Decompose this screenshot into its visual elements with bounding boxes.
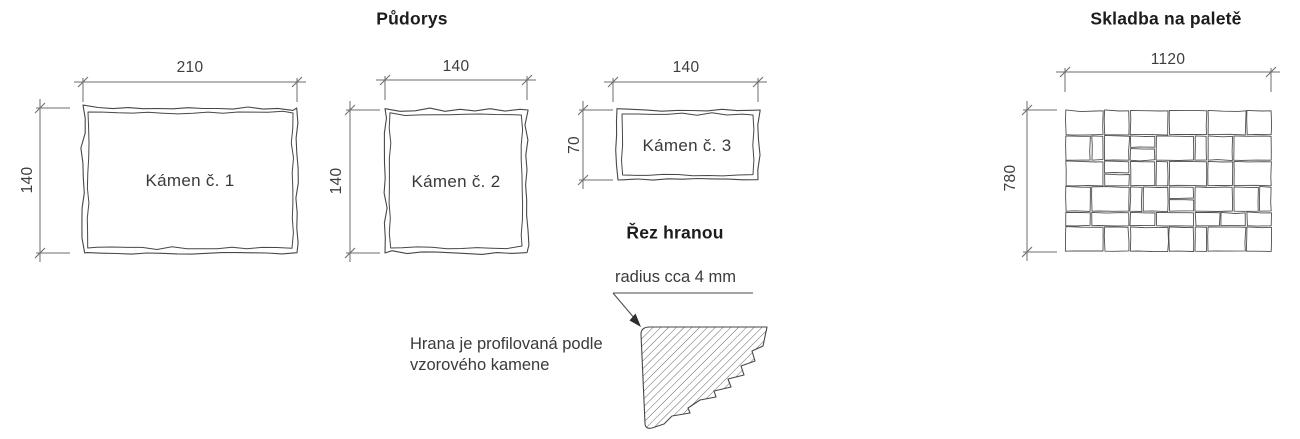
stone2-width-dimension: 140: [443, 58, 470, 76]
stone3-width-dimension: 140: [673, 59, 700, 77]
technical-drawing-page: Půdorys Skladba na paletě Řez hranou Kám…: [0, 0, 1300, 439]
pallet-title: Skladba na paletě: [1090, 9, 1241, 30]
stone1-width-dimension: 210: [177, 59, 204, 77]
stone3-height-dimension: 70: [566, 136, 584, 154]
stone2-height-dimension: 140: [328, 168, 346, 195]
stone1-height-dimension: 140: [19, 167, 37, 194]
pallet-height-dimension: 780: [1002, 165, 1020, 192]
plan-title: Půdorys: [376, 9, 447, 30]
edge-description-line1: Hrana je profilovaná podle: [410, 335, 603, 354]
edge-section-title: Řez hranou: [626, 223, 723, 244]
edge-description-line2: vzorového kamene: [410, 356, 549, 375]
stone1-label: Kámen č. 1: [146, 171, 235, 191]
radius-annotation: radius cca 4 mm: [615, 268, 736, 287]
pallet-width-dimension: 1120: [1151, 51, 1186, 69]
stone3-label: Kámen č. 3: [643, 136, 732, 156]
stone2-label: Kámen č. 2: [412, 172, 501, 192]
